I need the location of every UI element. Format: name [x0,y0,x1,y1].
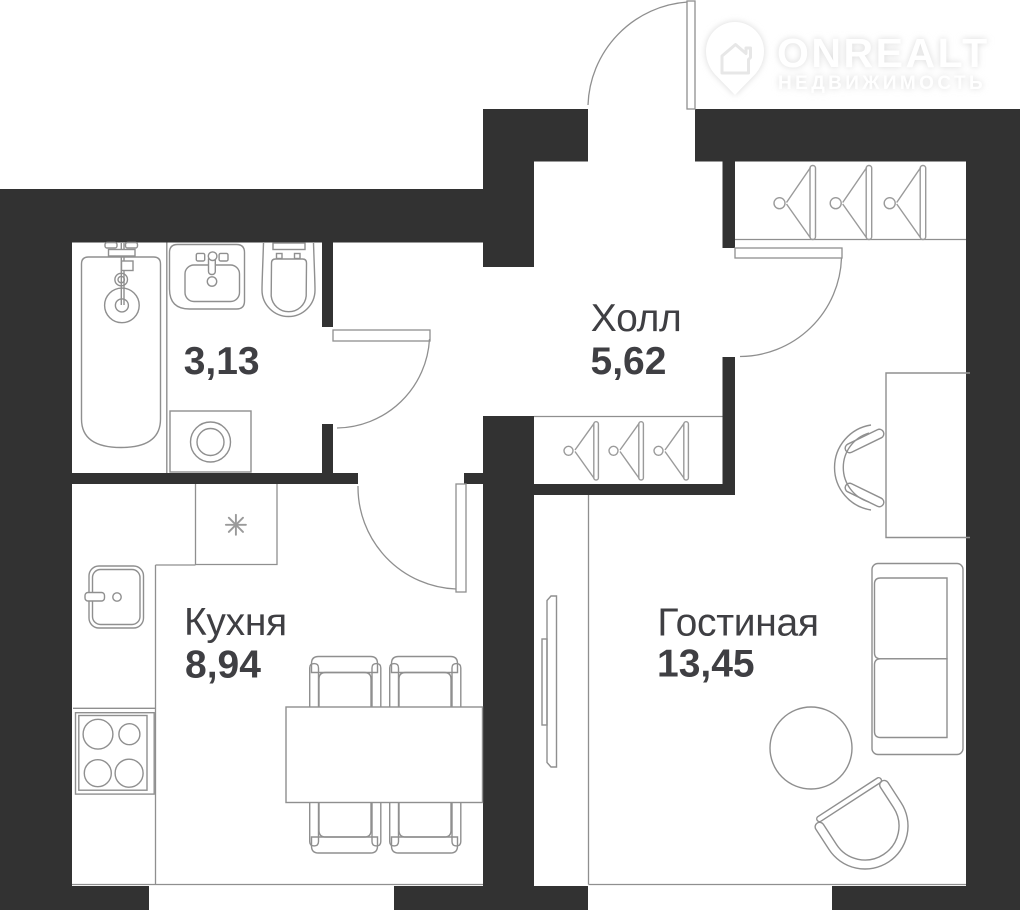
svg-text:3,13: 3,13 [184,340,260,383]
svg-text:Кухня: Кухня [184,601,287,644]
svg-text:8,94: 8,94 [185,644,261,687]
svg-text:Гостиная: Гостиная [657,602,818,645]
svg-text:5,62: 5,62 [591,340,667,383]
svg-text:13,45: 13,45 [657,643,755,686]
svg-text:Холл: Холл [591,297,682,340]
